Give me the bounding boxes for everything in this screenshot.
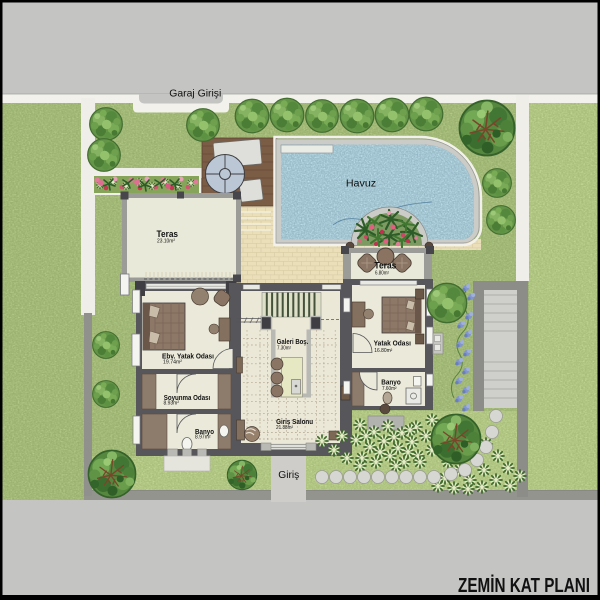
svg-text:6.80m²: 6.80m² — [375, 271, 389, 277]
svg-text:23.10m²: 23.10m² — [157, 239, 175, 245]
svg-text:19.74m²: 19.74m² — [163, 360, 182, 366]
svg-text:ZEMİN KAT PLANI: ZEMİN KAT PLANI — [458, 574, 590, 597]
svg-text:Teras: Teras — [157, 229, 179, 239]
svg-text:Garaj Girişi: Garaj Girişi — [169, 89, 221, 100]
svg-text:Yatak Odası: Yatak Odası — [374, 338, 411, 347]
svg-text:21.88m²: 21.88m² — [276, 425, 293, 431]
svg-text:16.80m²: 16.80m² — [374, 348, 392, 354]
svg-text:7.30m²: 7.30m² — [277, 346, 291, 352]
svg-text:8.97m²: 8.97m² — [195, 435, 211, 441]
svg-text:8.93m²: 8.93m² — [164, 401, 180, 407]
svg-text:Giriş: Giriş — [278, 470, 299, 481]
svg-text:7.60m²: 7.60m² — [382, 386, 397, 392]
svg-text:Havuz: Havuz — [346, 179, 376, 190]
